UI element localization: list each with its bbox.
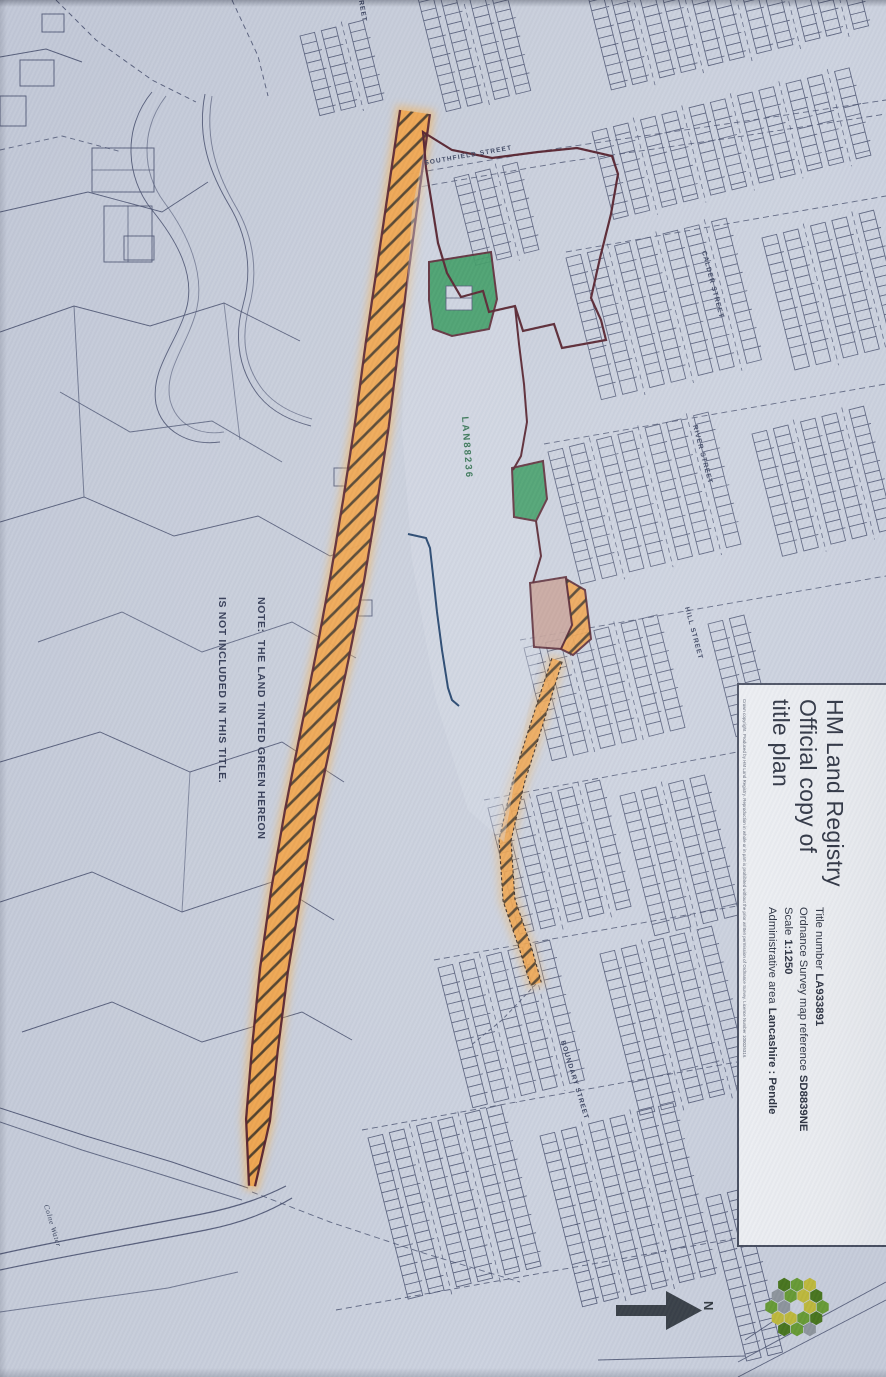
field-os-reference: Ordnance Survey map referenceSD8839NE	[795, 907, 811, 1131]
red-edged-parcels	[402, 132, 618, 842]
field-scale: Scale1:1250	[780, 907, 796, 1131]
copyright-microtext: Crown copyright. Produced by HM Land Reg…	[742, 699, 747, 1239]
field-label: Title number	[813, 907, 825, 969]
field-admin-area: Administrative areaLancashire : Pendle	[764, 907, 780, 1131]
field-label: Scale	[782, 907, 794, 935]
heading-line-3: title plan	[767, 699, 794, 899]
title-panel: HM Land Registry Official copy of title …	[737, 683, 886, 1247]
field-value: LA933891	[813, 973, 825, 1026]
field-value: Lancashire : Pendle	[767, 1008, 779, 1115]
note-line-1: NOTE: THE LAND TINTED GREEN HEREON	[254, 597, 267, 840]
field-value: 1:1250	[782, 939, 794, 974]
north-letter: N	[701, 1301, 716, 1310]
title-details: Title numberLA933891 Ordnance Survey map…	[764, 907, 826, 1131]
heading-line-1: HM Land Registry	[821, 699, 848, 899]
north-arrow	[616, 1291, 702, 1330]
field-title-number: Title numberLA933891	[811, 907, 827, 1131]
field-value: SD8839NE	[798, 1075, 810, 1132]
field-label: Administrative area	[767, 907, 779, 1004]
scanned-title-plan-page: HM Land Registry Official copy of title …	[0, 0, 886, 1377]
field-label: Ordnance Survey map reference	[798, 907, 810, 1071]
registry-heading: HM Land Registry Official copy of title …	[767, 699, 848, 899]
note-line-2: IS NOT INCLUDED IN THIS TITLE.	[215, 597, 228, 840]
heading-line-2: Official copy of	[794, 699, 821, 899]
green-land-note: NOTE: THE LAND TINTED GREEN HEREON IS NO…	[189, 597, 293, 840]
title-panel-content: HM Land Registry Official copy of title …	[739, 685, 886, 1247]
